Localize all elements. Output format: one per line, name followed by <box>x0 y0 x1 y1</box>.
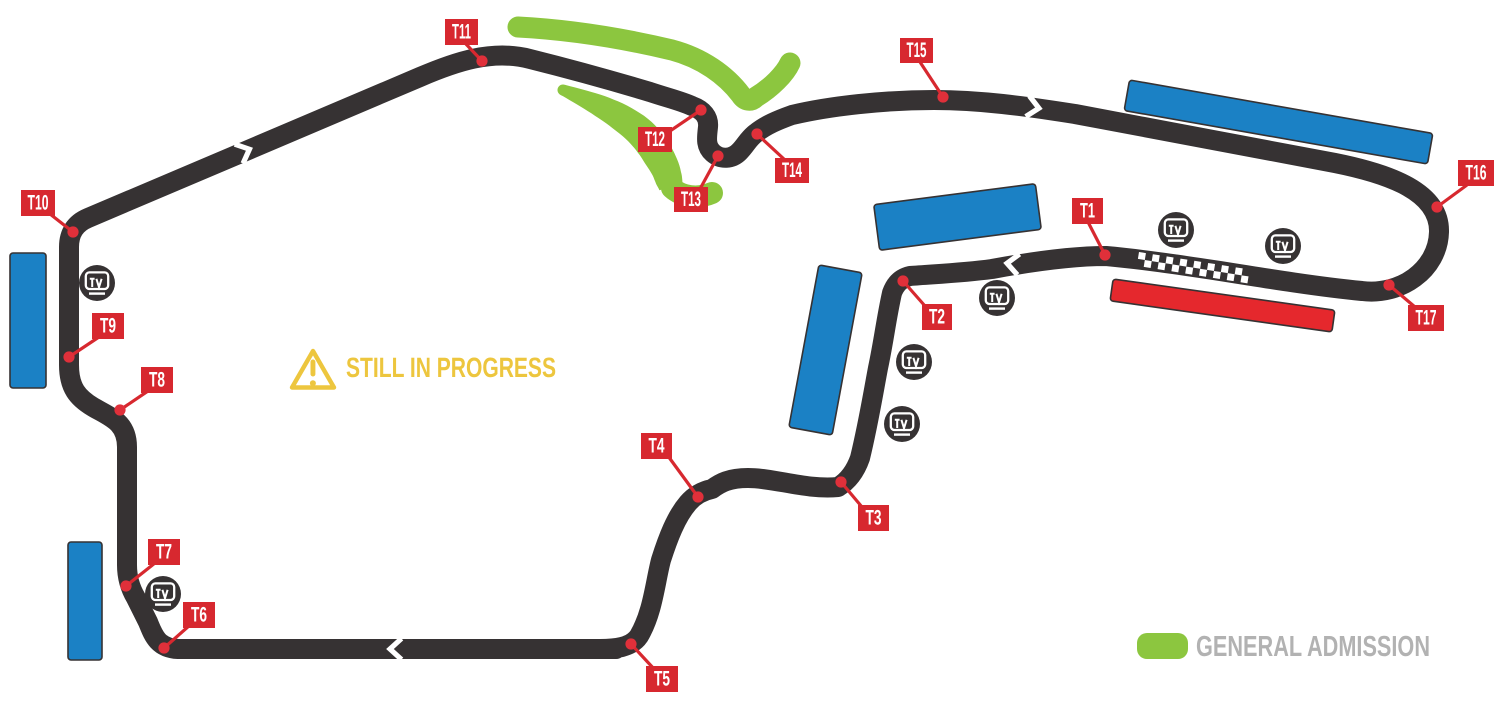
svg-text:T13: T13 <box>681 188 701 211</box>
svg-text:T11: T11 <box>452 21 471 44</box>
svg-text:T8: T8 <box>149 369 165 392</box>
svg-text:T2: T2 <box>929 306 945 329</box>
svg-text:T6: T6 <box>191 604 207 627</box>
svg-text:T3: T3 <box>866 507 882 530</box>
svg-text:T17: T17 <box>1416 307 1437 330</box>
svg-text:GENERAL ADMISSION: GENERAL ADMISSION <box>1196 631 1430 663</box>
svg-text:T1: T1 <box>1080 200 1095 223</box>
svg-text:T16: T16 <box>1466 162 1487 185</box>
svg-text:T12: T12 <box>645 128 665 151</box>
svg-text:T14: T14 <box>782 159 802 182</box>
svg-text:T7: T7 <box>156 541 172 564</box>
svg-text:STILL IN PROGRESS: STILL IN PROGRESS <box>346 352 556 383</box>
svg-text:T4: T4 <box>649 435 665 458</box>
svg-text:T10: T10 <box>28 192 49 215</box>
svg-text:T5: T5 <box>654 668 670 691</box>
svg-text:T9: T9 <box>100 315 116 338</box>
svg-text:T15: T15 <box>907 39 927 62</box>
